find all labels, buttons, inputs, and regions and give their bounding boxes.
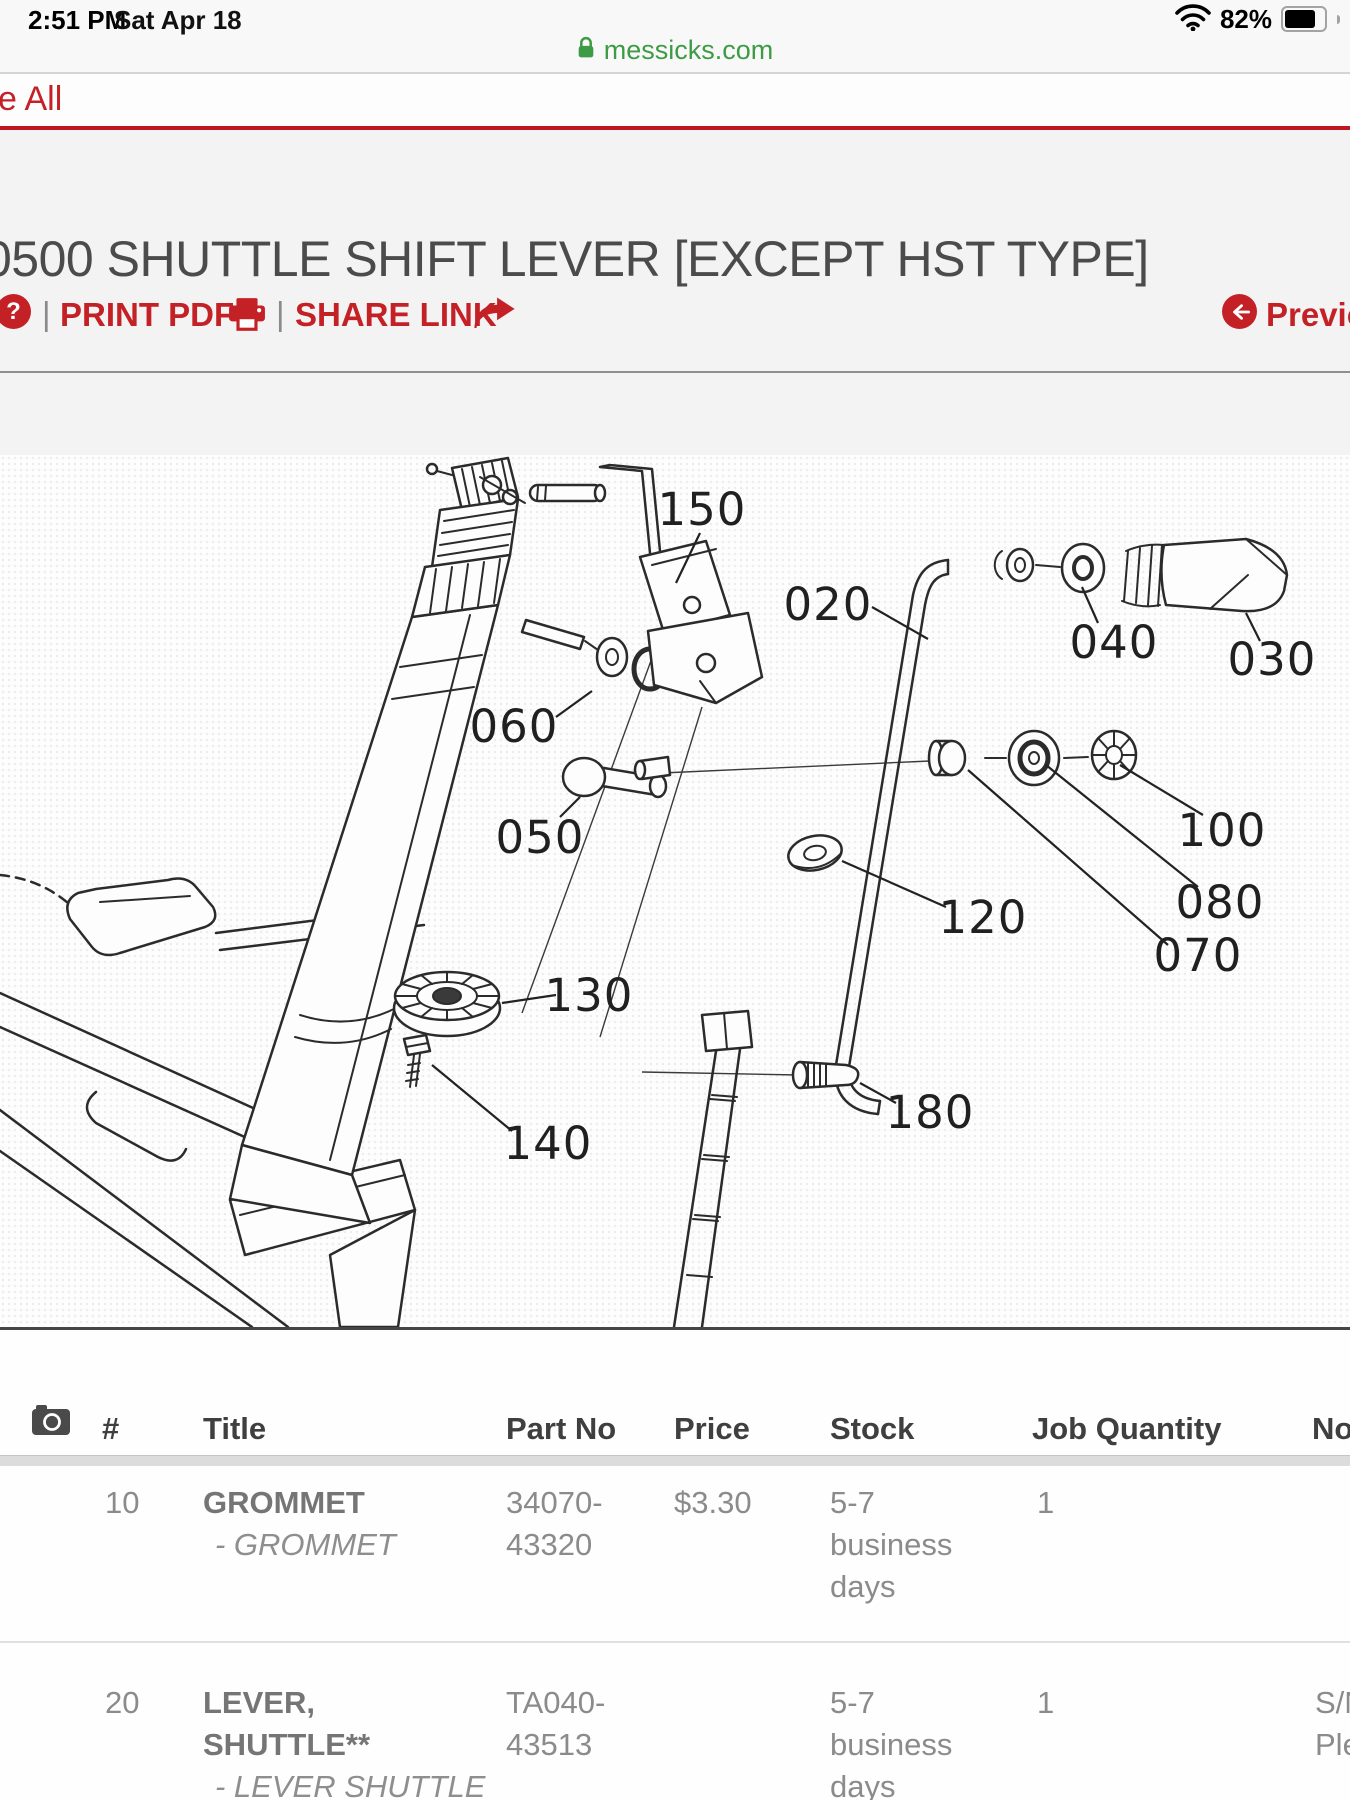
print-pdf-button[interactable]: PRINT PDF bbox=[60, 296, 234, 334]
parts-diagram: 150 020 040 030 060 050 100 080 070 120 … bbox=[0, 455, 1350, 1330]
camera-icon[interactable] bbox=[32, 1404, 70, 1436]
part-callout: 120 bbox=[939, 891, 1028, 944]
help-button[interactable]: ? bbox=[0, 294, 31, 329]
part-callout: 060 bbox=[470, 700, 559, 753]
status-icons: 82% bbox=[1175, 5, 1340, 33]
row-stock-line3: days bbox=[830, 1766, 952, 1800]
row-title-line1: LEVER, bbox=[203, 1682, 370, 1724]
part-callout: 130 bbox=[545, 969, 634, 1022]
help-label: ? bbox=[6, 298, 21, 326]
divider-bar: | bbox=[276, 295, 285, 333]
part-020-rod bbox=[835, 560, 948, 1114]
parts-table: # Title Part No Price Stock Job Quantity… bbox=[0, 1330, 1350, 1800]
col-header-num: # bbox=[102, 1408, 119, 1450]
row-job-quantity: 1 bbox=[1037, 1682, 1054, 1724]
row-stock-line2: business bbox=[830, 1524, 952, 1566]
part-120-grommet bbox=[785, 831, 845, 875]
part-callout: 050 bbox=[496, 811, 585, 864]
part-030-knob bbox=[1122, 539, 1287, 611]
part-callout: 080 bbox=[1176, 876, 1265, 929]
row-stock-line1: 5-7 bbox=[830, 1682, 952, 1724]
part-callout: 180 bbox=[886, 1086, 975, 1139]
part-130-grommet-disc bbox=[394, 972, 500, 1036]
row-separator bbox=[0, 1641, 1350, 1643]
part-callout: 140 bbox=[504, 1117, 593, 1170]
col-header-title: Title bbox=[203, 1408, 266, 1450]
previous-arrow-icon[interactable] bbox=[1222, 294, 1257, 329]
row-title-line2: SHUTTLE** bbox=[203, 1724, 370, 1766]
page-toolbar: ? | PRINT PDF | SHARE LINK Previous bbox=[0, 294, 1350, 338]
part-callout: 020 bbox=[784, 578, 873, 631]
row-num: 20 bbox=[105, 1682, 139, 1724]
url-domain: messicks.com bbox=[604, 35, 774, 66]
row-notes-line1: S/N bbox=[1315, 1682, 1350, 1724]
lock-icon bbox=[577, 36, 595, 64]
address-bar[interactable]: messicks.com bbox=[0, 30, 1350, 70]
row-subtitle: - LEVER SHUTTLE bbox=[215, 1766, 485, 1800]
col-header-price: Price bbox=[674, 1408, 750, 1450]
col-header-stock: Stock bbox=[830, 1408, 914, 1450]
row-stock-line1: 5-7 bbox=[830, 1482, 952, 1524]
row-part-no-line2: 43513 bbox=[506, 1724, 605, 1766]
main-column bbox=[230, 458, 518, 1223]
part-callout: 040 bbox=[1070, 616, 1159, 669]
lower-rod bbox=[674, 1011, 752, 1327]
row-part-no-line1: 34070- bbox=[506, 1482, 603, 1524]
parts-diagram-drawing: 150 020 040 030 060 050 100 080 070 120 … bbox=[0, 455, 1350, 1327]
previous-button[interactable]: Previous bbox=[1266, 296, 1350, 334]
browser-chrome: 2:51 PM Sat Apr 18 82% me bbox=[0, 0, 1350, 74]
part-callout: 030 bbox=[1228, 633, 1317, 686]
gray-divider bbox=[0, 371, 1350, 373]
truncated-link[interactable]: e All bbox=[0, 80, 62, 119]
part-callout: 100 bbox=[1178, 804, 1267, 857]
part-140-bolt bbox=[404, 1035, 430, 1087]
part-180-plug bbox=[793, 1062, 858, 1088]
divider-bar: | bbox=[42, 295, 51, 333]
red-divider bbox=[0, 126, 1350, 130]
row-part-no-line2: 43320 bbox=[506, 1524, 603, 1566]
page-title: 0500 SHUTTLE SHIFT LEVER [EXCEPT HST TYP… bbox=[0, 230, 1149, 288]
row-part-no-line1: TA040- bbox=[506, 1682, 605, 1724]
row-notes-line2: Ple bbox=[1315, 1724, 1350, 1766]
row-title-line1: GROMMET bbox=[203, 1482, 365, 1524]
row-job-quantity: 1 bbox=[1037, 1482, 1054, 1524]
part-callout: 150 bbox=[658, 483, 747, 536]
site-header-band bbox=[0, 74, 1350, 126]
col-header-part-no: Part No bbox=[506, 1408, 616, 1450]
part-040-washers bbox=[995, 544, 1104, 592]
col-header-job-quantity: Job Quantity bbox=[1032, 1408, 1221, 1450]
row-num: 10 bbox=[105, 1482, 139, 1524]
battery-nub bbox=[1337, 15, 1340, 24]
printer-icon[interactable] bbox=[228, 298, 266, 337]
safari-page: 2:51 PM Sat Apr 18 82% me bbox=[0, 0, 1350, 1800]
share-link-button[interactable]: SHARE LINK bbox=[295, 296, 497, 334]
row-stock-line2: business bbox=[830, 1724, 952, 1766]
header-separator bbox=[0, 1455, 1350, 1466]
battery-icon bbox=[1281, 6, 1327, 32]
part-callout: 070 bbox=[1154, 929, 1243, 982]
row-stock-line3: days bbox=[830, 1566, 952, 1608]
col-header-notes: Notes bbox=[1312, 1408, 1350, 1450]
row-price: $3.30 bbox=[674, 1482, 752, 1524]
row-subtitle: - GROMMET bbox=[215, 1524, 396, 1566]
share-arrow-icon[interactable] bbox=[472, 297, 516, 335]
